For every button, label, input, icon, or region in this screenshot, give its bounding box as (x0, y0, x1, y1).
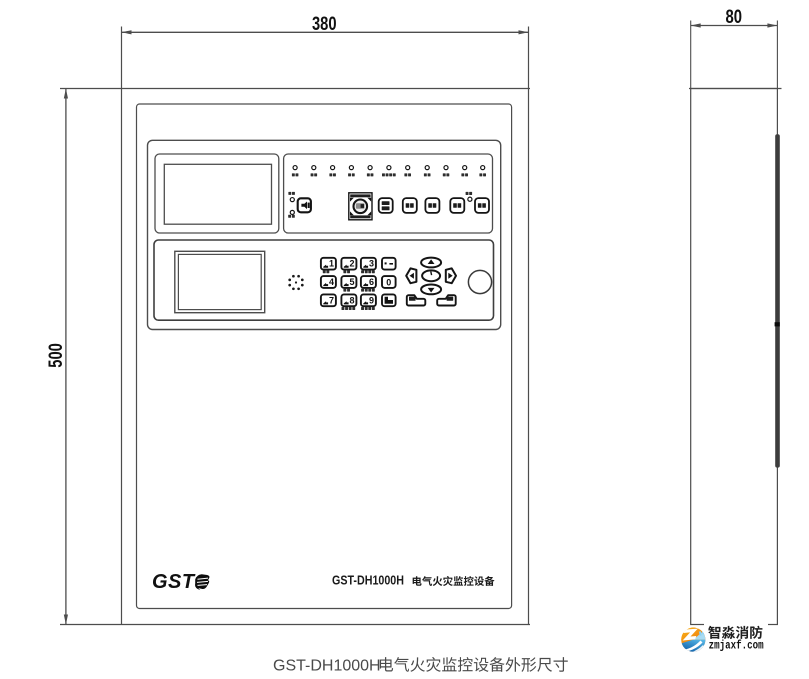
svg-text:6: 6 (369, 277, 374, 287)
svg-text:0: 0 (386, 277, 391, 287)
svg-text:2: 2 (349, 259, 354, 269)
svg-text:4: 4 (329, 277, 334, 287)
svg-text:80: 80 (726, 7, 743, 28)
svg-text:7: 7 (329, 295, 334, 305)
svg-text:GST-DH1000H: GST-DH1000H (273, 658, 381, 675)
svg-text:9: 9 (369, 295, 374, 305)
svg-text:zmjaxf.com: zmjaxf.com (709, 639, 764, 653)
svg-text:1: 1 (329, 259, 334, 269)
svg-text:GST-DH1000H: GST-DH1000H (332, 574, 404, 588)
svg-text:8: 8 (349, 295, 354, 305)
svg-text:380: 380 (312, 14, 337, 35)
svg-text:3: 3 (369, 259, 374, 269)
svg-text:500: 500 (46, 343, 67, 368)
svg-text:5: 5 (349, 277, 354, 287)
svg-text:GST: GST (152, 571, 196, 593)
